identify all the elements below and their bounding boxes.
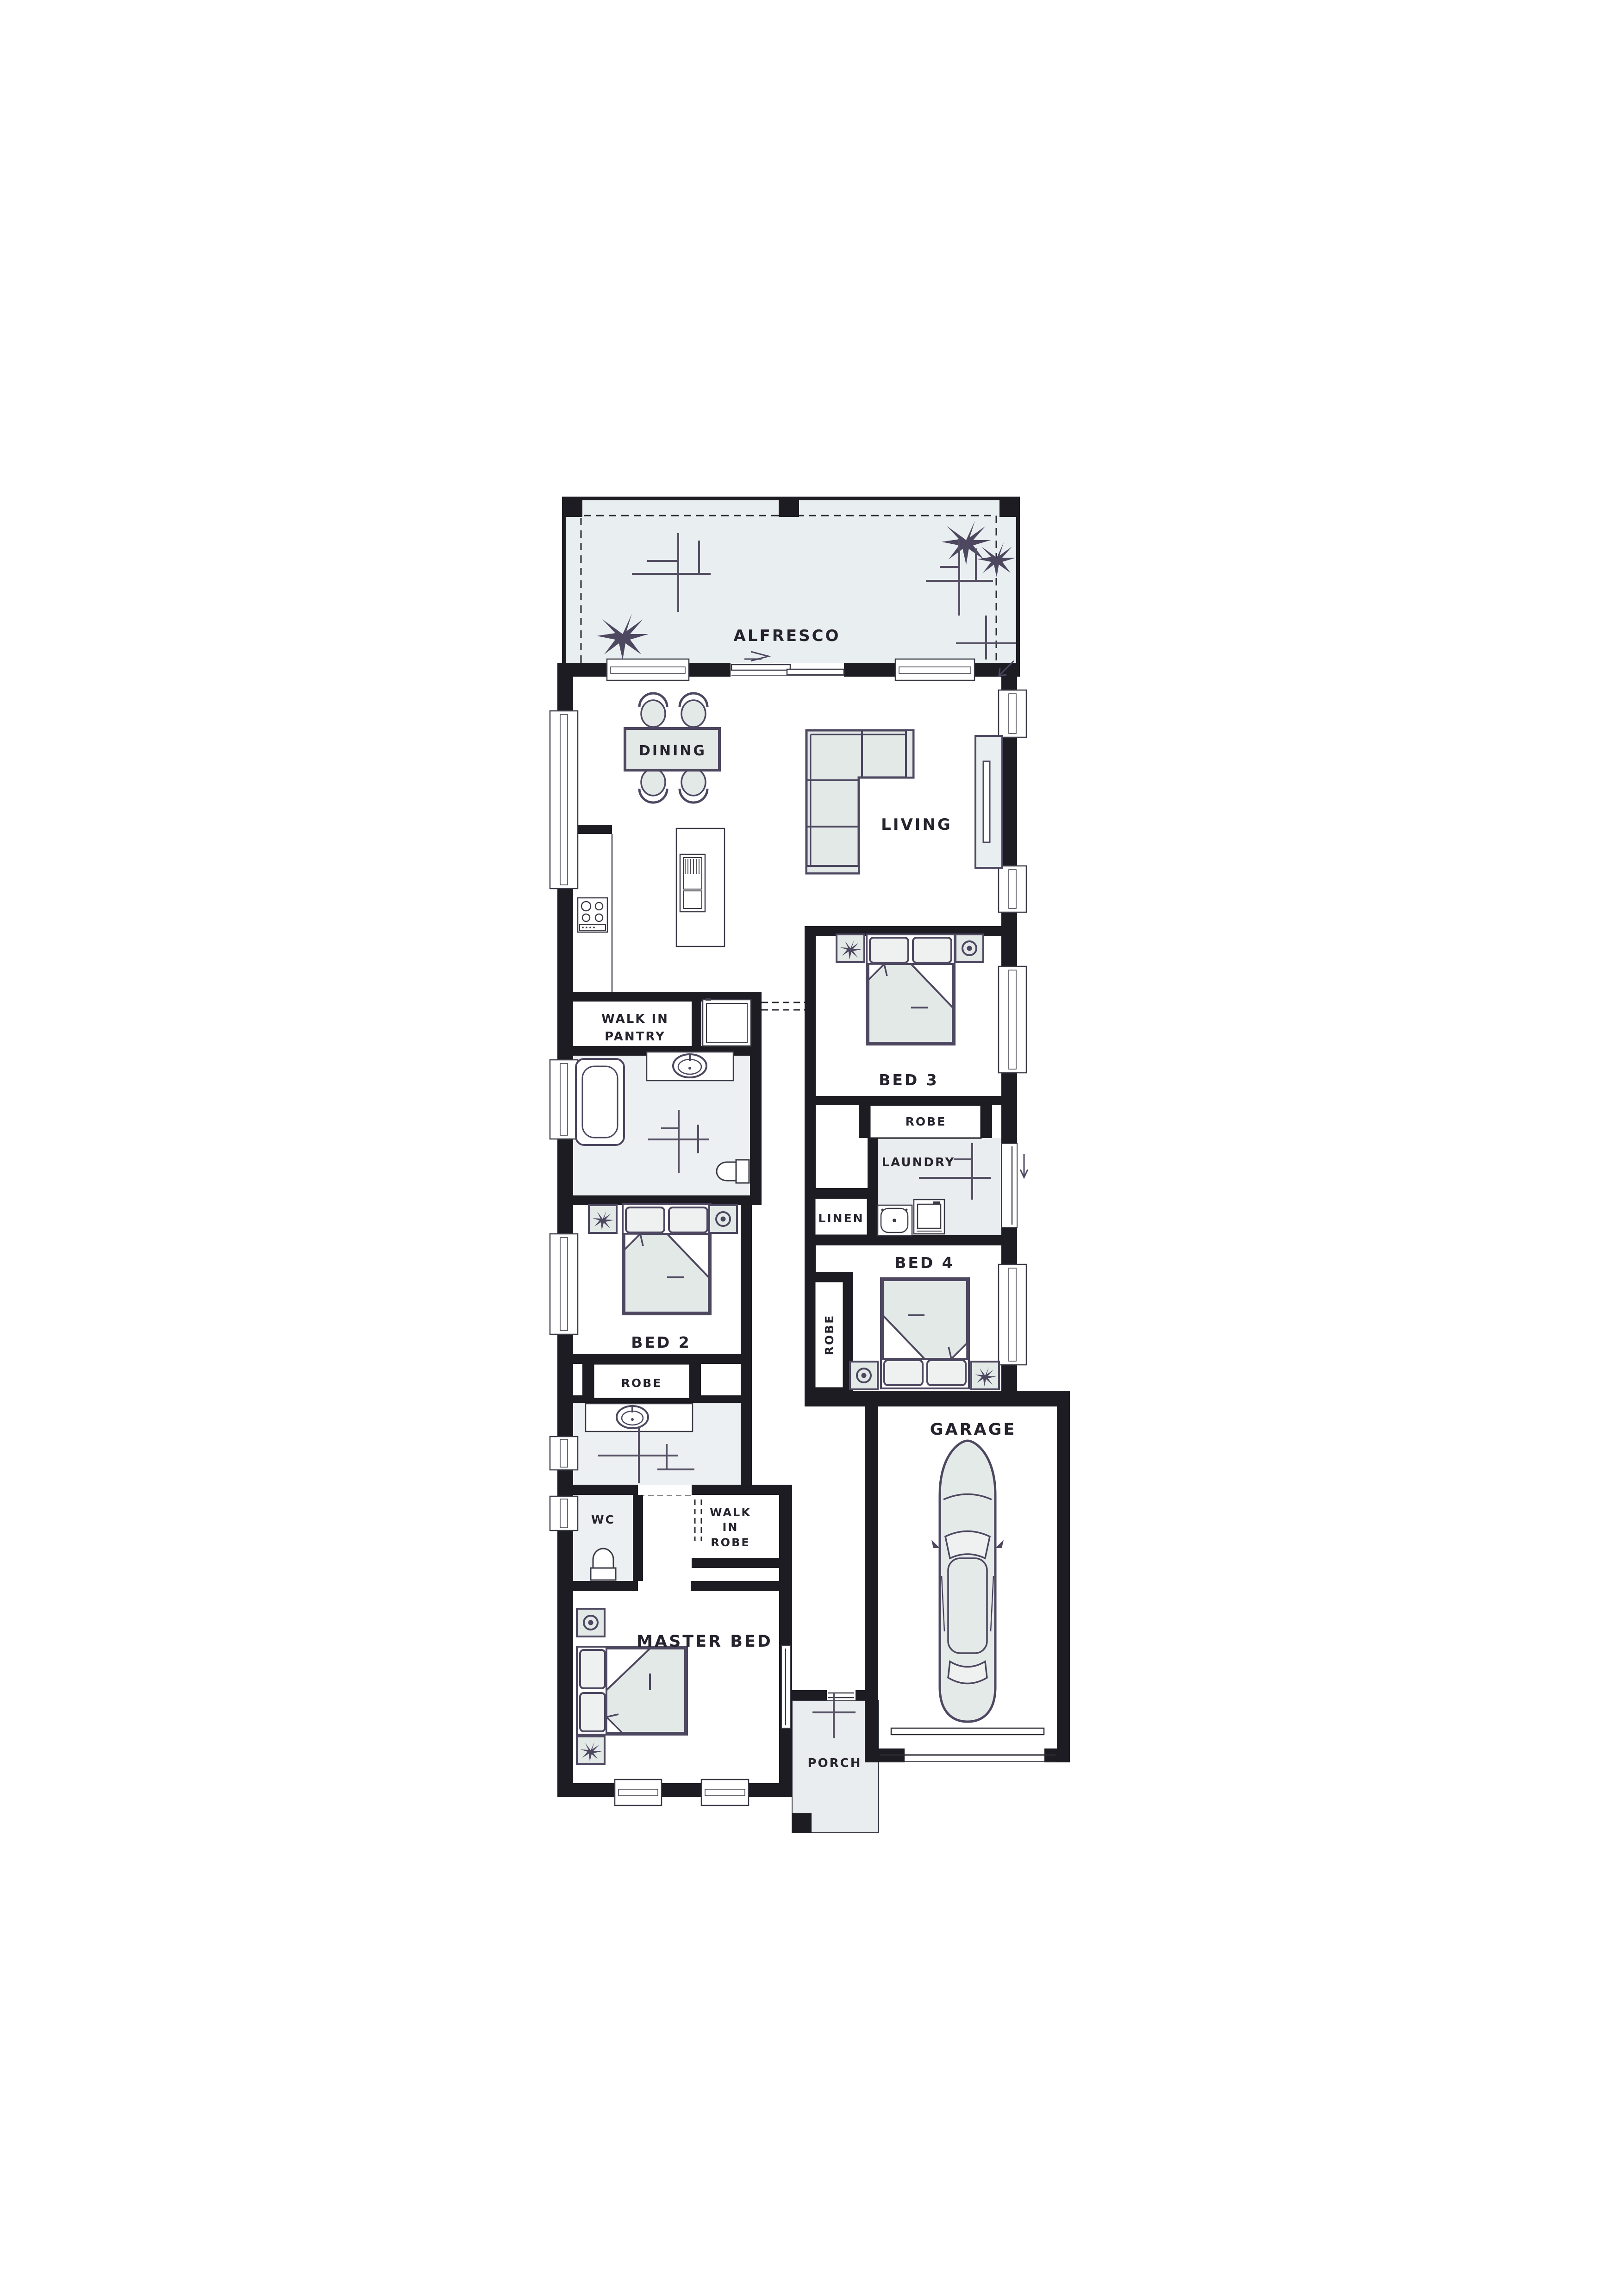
window-bed4: [999, 1264, 1026, 1365]
floor-plan-drawing: ALFRESCO DINING LIVING WALK IN PANTRY BE…: [0, 0, 1624, 2296]
robe-bed4-label: ROBE: [823, 1314, 836, 1356]
wall-robe4-jamb: [815, 1388, 843, 1397]
wall-master-right: [779, 1485, 792, 1797]
wc-toilet-icon: [591, 1549, 616, 1580]
wall-robe3-jamb: [981, 1096, 992, 1138]
walk-in-robe-label-line2: IN: [722, 1521, 738, 1534]
fridge-icon: [703, 998, 751, 1046]
bed3-label: BED 3: [879, 1071, 939, 1089]
window-alfresco-left: [607, 659, 689, 680]
porch-label: PORCH: [807, 1756, 862, 1770]
robe-bed3-label: ROBE: [906, 1115, 947, 1128]
wall-exterior-bottom: [557, 1783, 792, 1797]
laundry-tub-icon: [878, 1205, 912, 1236]
wall-hall-right: [805, 926, 816, 1391]
car-icon: [931, 1441, 1004, 1722]
porch-post: [792, 1813, 812, 1833]
wall-garage-left: [865, 1406, 878, 1748]
window-master-left: [615, 1780, 662, 1805]
dining-label: DINING: [639, 743, 706, 759]
wall-wc-right: [633, 1495, 643, 1581]
wall-ensuite-right: [741, 1364, 752, 1489]
window-dining: [550, 711, 578, 889]
opening-ensuite: [638, 1485, 692, 1495]
wall-garage-right: [1057, 1391, 1070, 1762]
window-living-lower: [999, 866, 1026, 912]
opening-master: [638, 1581, 691, 1591]
laundry-exit-arrow-icon: [1020, 1154, 1028, 1177]
alfresco-post: [562, 497, 582, 517]
walk-in-robe-label-line1: WALK: [710, 1506, 751, 1519]
wall-bed2-right: [741, 1205, 752, 1364]
window-living-upper: [999, 690, 1026, 737]
alfresco-label: ALFRESCO: [734, 627, 841, 645]
entry-side-panel: [781, 1646, 791, 1728]
wall-wir-bottom: [692, 1558, 792, 1568]
window-bathroom: [550, 1060, 578, 1139]
wall-robe2-top: [557, 1354, 752, 1364]
alfresco-post: [779, 497, 799, 517]
wall-linen-top: [805, 1188, 878, 1198]
alfresco-wall-right: [1016, 497, 1020, 663]
window-wc: [550, 1496, 578, 1531]
bed2-bed-icon: [623, 1204, 711, 1314]
alfresco-wall-left: [562, 497, 566, 663]
wall-robe2-jamb: [582, 1364, 593, 1399]
bed2-label: BED 2: [631, 1333, 691, 1351]
tv-icon: [983, 761, 990, 842]
toilet-icon: [717, 1160, 749, 1183]
wall-robe3-jamb: [859, 1096, 870, 1138]
washing-machine-icon: [914, 1200, 944, 1234]
wc-label: WC: [591, 1513, 615, 1526]
walk-in-pantry-label-line1: WALK IN: [601, 1012, 669, 1026]
wall-bed4-top: [805, 1235, 1017, 1245]
wall-bathroom-right: [750, 1000, 762, 1205]
island-bench: [676, 828, 725, 946]
linen-label: LINEN: [818, 1212, 864, 1225]
laundry-label: LAUNDRY: [882, 1156, 956, 1170]
window-alfresco-right: [895, 659, 974, 680]
bed4-bed-icon: [881, 1278, 969, 1388]
stacker-door: [731, 663, 844, 677]
walk-in-pantry-label-line2: PANTRY: [605, 1030, 666, 1044]
tv-unit: [975, 736, 1002, 868]
laundry-door: [1001, 1144, 1017, 1227]
walk-in-robe-label-line3: ROBE: [711, 1536, 750, 1549]
window-bed3: [999, 966, 1026, 1073]
bed3-bed-icon: [867, 934, 955, 1045]
bed4-label: BED 4: [894, 1254, 955, 1272]
window-bed2: [550, 1234, 578, 1334]
living-label: LIVING: [881, 815, 952, 834]
window-master-right: [701, 1780, 749, 1805]
alfresco-post: [999, 497, 1020, 517]
garage-label: GARAGE: [930, 1420, 1017, 1439]
window-ensuite: [550, 1437, 578, 1470]
wall-robe4-jamb: [815, 1272, 843, 1282]
master-bed-icon: [577, 1647, 687, 1735]
floor-plan-page: ALFRESCO DINING LIVING WALK IN PANTRY BE…: [0, 0, 1624, 2296]
robe-bed2-label: ROBE: [621, 1376, 662, 1390]
sofa-icon: [806, 730, 913, 873]
wall-kitchen-stub: [574, 825, 612, 834]
master-bed-label: MASTER BED: [637, 1632, 773, 1651]
vanity-basin-icon: [647, 1052, 733, 1081]
cooktop-icon: [578, 898, 607, 932]
bath-icon: [576, 1059, 624, 1145]
laundry-fixtures: [878, 1200, 944, 1236]
wall-robe3-band: [815, 1096, 1001, 1105]
walk-in-robe-door-dashes: [695, 1500, 701, 1541]
wall-robe2-jamb: [690, 1364, 701, 1399]
opening-front-door: [827, 1690, 856, 1700]
